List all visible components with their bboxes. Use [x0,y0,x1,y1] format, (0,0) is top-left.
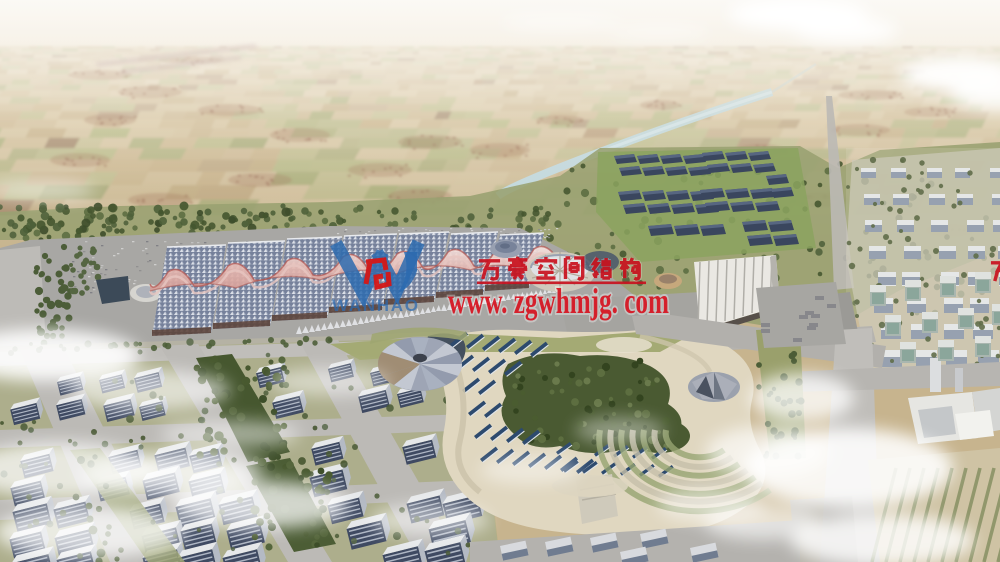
svg-text:WANHAO: WANHAO [332,296,418,315]
svg-text:www. zgwhmjg. com: www. zgwhmjg. com [448,281,669,320]
